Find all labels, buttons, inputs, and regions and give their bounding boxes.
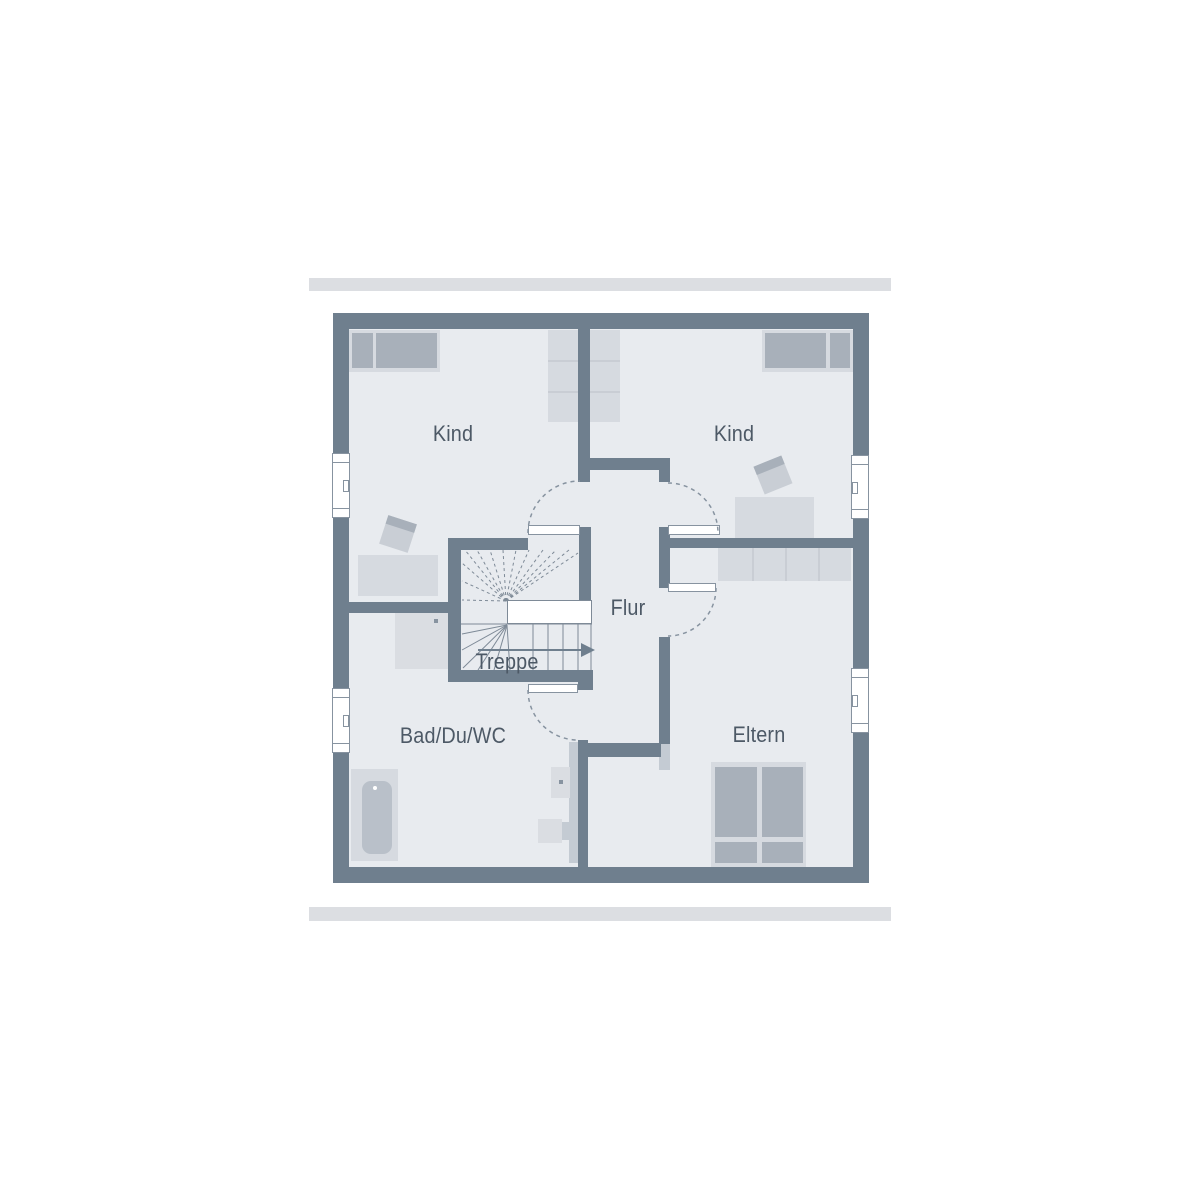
pillow [830, 333, 850, 368]
shelf-line [548, 360, 578, 362]
sink [551, 767, 570, 798]
wall-bad-east [578, 740, 588, 868]
stair-wall-nib [578, 670, 593, 690]
door-leaf-eltern [668, 583, 716, 592]
pillow [352, 333, 373, 368]
toilet-tank [562, 822, 570, 840]
stair-wall-north [448, 538, 528, 550]
pillow [762, 842, 803, 863]
wall-flur-jog [578, 458, 670, 470]
room-label-flur: Flur [611, 595, 646, 621]
outer-wall-east [853, 313, 869, 883]
outer-wall-south [333, 867, 869, 883]
closet-line [785, 548, 787, 581]
closet-line [818, 548, 820, 581]
mattress [715, 767, 757, 837]
shelf-line [548, 391, 578, 393]
desk-kind-right [735, 497, 814, 538]
window-east-lower [851, 668, 869, 733]
wall-flur-south [588, 743, 661, 757]
wardrobe-kind-right [590, 330, 620, 422]
door-leaf-bad [528, 684, 578, 693]
wall-flur-east-lower [659, 637, 670, 744]
shower-drain [434, 619, 438, 623]
room-label-bad: Bad/Du/WC [400, 723, 506, 749]
shower [395, 613, 450, 669]
room-label-eltern: Eltern [733, 722, 786, 748]
window-west-lower [332, 688, 350, 753]
bathtub [351, 769, 398, 861]
toilet [538, 819, 562, 843]
mattress [765, 333, 826, 368]
bed-kind-right [762, 330, 853, 372]
installation-wall [569, 742, 578, 863]
stair-wall-east [579, 527, 591, 603]
mattress [376, 333, 437, 368]
wall-kindright-eltern [659, 538, 853, 548]
floor-plan-canvas: Kind Kind Flur Treppe Bad/Du/WC Eltern [0, 0, 1200, 1200]
door-leaf-kind-right [668, 525, 720, 535]
wardrobe-kind-left [548, 330, 578, 422]
door-leaf-kind-left [528, 525, 580, 535]
window-west-upper [332, 453, 350, 518]
double-bed-eltern [711, 762, 806, 867]
wall-flur-jog-return [659, 458, 670, 482]
shelf-line [590, 360, 620, 362]
outer-wall-north [333, 313, 869, 329]
bathtub-faucet [373, 786, 377, 790]
stair-wall-west [448, 538, 461, 682]
room-label-kind-right: Kind [714, 421, 754, 447]
outer-wall-west [333, 313, 349, 883]
shelf-line [590, 391, 620, 393]
roof-edge-bottom [309, 907, 891, 921]
room-label-treppe: Treppe [475, 649, 538, 675]
closet-line [752, 548, 754, 581]
pillow [715, 842, 757, 863]
wall-bad-north [349, 602, 451, 613]
stair-landing [507, 600, 592, 624]
window-east-upper [851, 455, 869, 519]
wall-flur-east-upper [659, 527, 670, 588]
closet-eltern [718, 548, 851, 581]
mattress [762, 767, 803, 837]
desk-kind-left [358, 555, 438, 596]
roof-edge-top [309, 278, 891, 291]
bed-kind-left [349, 330, 440, 372]
sink-drain [559, 780, 563, 784]
bathtub-basin [362, 781, 392, 854]
room-label-kind-left: Kind [433, 421, 473, 447]
